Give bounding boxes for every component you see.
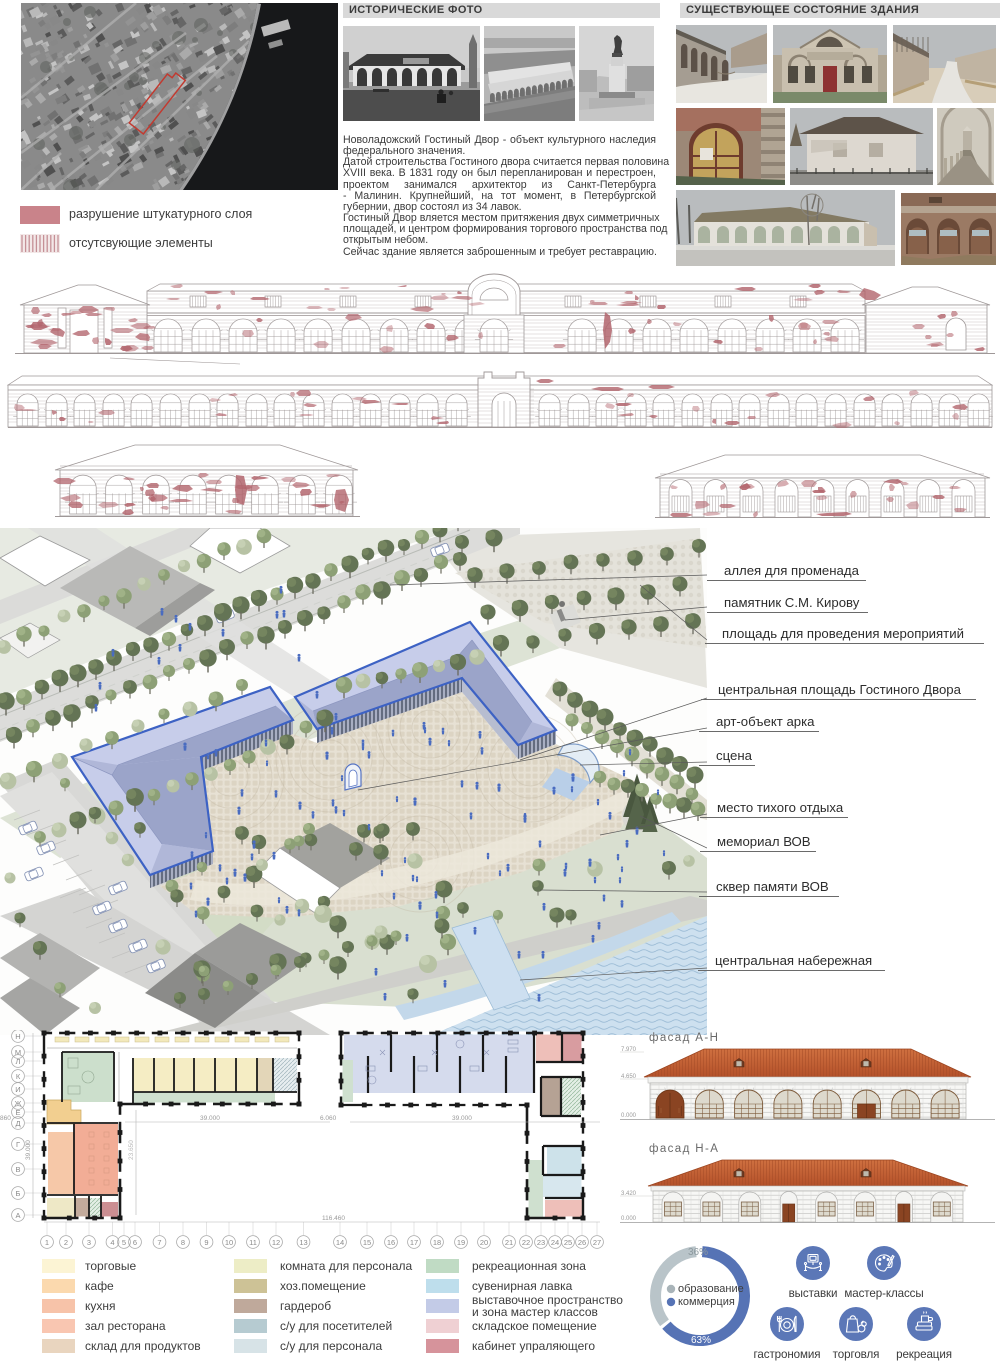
svg-text:26: 26 <box>578 1238 586 1247</box>
svg-text:22: 22 <box>522 1238 530 1247</box>
svg-text:13: 13 <box>299 1238 307 1247</box>
svg-text:0.000: 0.000 <box>621 1113 637 1119</box>
svg-text:10: 10 <box>225 1238 233 1247</box>
svg-text:Е: Е <box>15 1108 20 1117</box>
svg-text:16: 16 <box>387 1238 395 1247</box>
svg-text:М: М <box>15 1048 21 1057</box>
svg-text:1: 1 <box>45 1238 49 1247</box>
svg-text:6: 6 <box>133 1238 137 1247</box>
svg-text:гастрономия: гастрономия <box>754 1348 821 1361</box>
svg-text:В: В <box>15 1165 20 1174</box>
svg-text:фасад Н-А: фасад Н-А <box>649 1143 719 1155</box>
svg-text:3: 3 <box>87 1238 91 1247</box>
svg-text:Л: Л <box>16 1057 21 1066</box>
svg-text:14: 14 <box>336 1238 344 1247</box>
svg-text:15: 15 <box>363 1238 371 1247</box>
svg-text:9: 9 <box>204 1238 208 1247</box>
svg-text:27: 27 <box>593 1238 601 1247</box>
svg-text:17: 17 <box>410 1238 418 1247</box>
svg-text:А: А <box>15 1211 20 1220</box>
svg-text:18: 18 <box>433 1238 441 1247</box>
svg-text:выставки: выставки <box>789 1287 838 1300</box>
svg-text:Б: Б <box>16 1189 21 1198</box>
svg-text:39.000: 39.000 <box>25 1140 32 1160</box>
svg-text:Д: Д <box>15 1119 20 1128</box>
svg-text:И: И <box>15 1085 20 1094</box>
svg-text:19: 19 <box>457 1238 465 1247</box>
svg-text:36%: 36% <box>688 1247 708 1258</box>
svg-text:39.000: 39.000 <box>452 1115 472 1122</box>
svg-text:2: 2 <box>64 1238 68 1247</box>
svg-text:7: 7 <box>157 1238 161 1247</box>
svg-text:К: К <box>16 1072 21 1081</box>
svg-text:39.000: 39.000 <box>200 1115 220 1122</box>
svg-text:8: 8 <box>181 1238 185 1247</box>
svg-text:6.060: 6.060 <box>320 1115 337 1122</box>
svg-text:20: 20 <box>480 1238 488 1247</box>
svg-text:23.650: 23.650 <box>128 1140 135 1160</box>
svg-text:12: 12 <box>272 1238 280 1247</box>
svg-text:Г: Г <box>16 1140 20 1149</box>
svg-text:Н: Н <box>15 1032 20 1041</box>
svg-text:63%: 63% <box>691 1335 711 1346</box>
svg-text:фасад А-Н: фасад А-Н <box>649 1032 719 1044</box>
svg-text:5: 5 <box>122 1238 126 1247</box>
svg-text:торговля: торговля <box>833 1348 880 1361</box>
svg-text:4: 4 <box>110 1238 114 1247</box>
svg-text:0.000: 0.000 <box>621 1216 637 1222</box>
svg-text:рекреация: рекреация <box>896 1348 952 1361</box>
svg-text:мастер-классы: мастер-классы <box>844 1287 923 1300</box>
svg-text:11: 11 <box>249 1238 257 1247</box>
svg-text:23: 23 <box>537 1238 545 1247</box>
svg-text:24: 24 <box>551 1238 559 1247</box>
svg-text:116.460: 116.460 <box>322 1215 345 1222</box>
svg-text:25: 25 <box>564 1238 572 1247</box>
svg-text:21: 21 <box>505 1238 513 1247</box>
svg-text:860: 860 <box>0 1115 11 1122</box>
